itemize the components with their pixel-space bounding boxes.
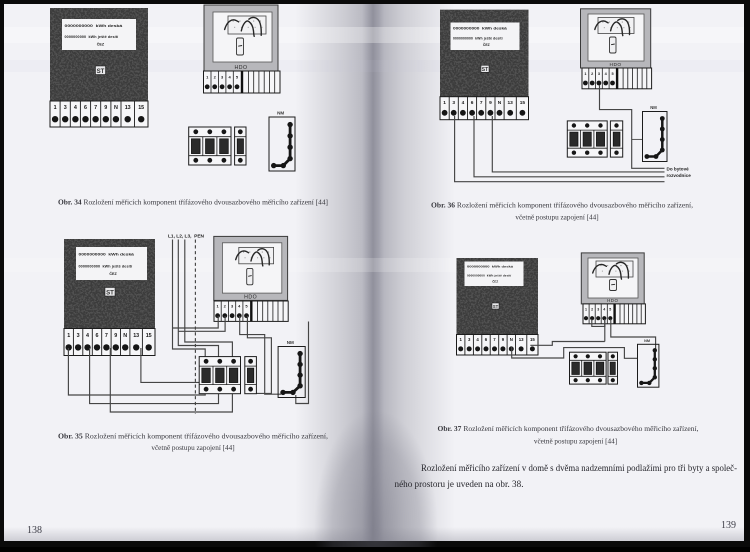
svg-text:9: 9 — [489, 100, 492, 106]
svg-text:15: 15 — [520, 100, 526, 106]
svg-text:3: 3 — [452, 100, 455, 106]
svg-text:0000000000 kWh ještě desítí: 0000000000 kWh ještě desítí — [65, 35, 120, 39]
svg-text:Obr. 34 Rozložení měřicích ko: Obr. 34 Rozložení měřicích komponent tří… — [58, 199, 328, 207]
svg-text:ČEZ: ČEZ — [492, 278, 498, 283]
svg-text:0000000000 kWh deská: 0000000000 kWh deská — [453, 26, 507, 30]
svg-text:ČEZ: ČEZ — [483, 42, 490, 47]
svg-text:HDO: HDO — [234, 65, 247, 71]
svg-text:1: 1 — [54, 105, 57, 111]
svg-text:0000000000 kWh deská: 0000000000 kWh deská — [65, 24, 124, 28]
svg-text:NM: NM — [644, 339, 650, 343]
svg-text:15: 15 — [138, 105, 144, 111]
svg-text:4: 4 — [603, 308, 605, 312]
svg-text:0000000000 kWh ještě desítí: 0000000000 kWh ještě desítí — [453, 37, 504, 41]
svg-text:NM: NM — [287, 340, 294, 345]
svg-text:1: 1 — [585, 308, 587, 312]
svg-text:1: 1 — [67, 333, 70, 339]
svg-text:4: 4 — [462, 100, 465, 106]
svg-text:13: 13 — [508, 100, 514, 106]
svg-text:13: 13 — [519, 337, 524, 342]
svg-text:7: 7 — [480, 100, 483, 106]
svg-text:9: 9 — [104, 105, 107, 111]
svg-text:2: 2 — [591, 72, 593, 76]
svg-text:4: 4 — [86, 333, 89, 339]
svg-text:HDO: HDO — [244, 295, 257, 301]
svg-text:ST: ST — [482, 67, 488, 73]
svg-text:6: 6 — [96, 333, 99, 339]
svg-text:rozvodnice: rozvodnice — [667, 173, 692, 178]
svg-text:NM: NM — [277, 111, 284, 116]
svg-text:5: 5 — [611, 72, 613, 76]
svg-text:0000000000 kWh deská: 0000000000 kWh deská — [467, 265, 513, 269]
svg-text:3: 3 — [77, 333, 80, 339]
svg-text:včetně postupu zapojení [44]: včetně postupu zapojení [44] — [515, 214, 598, 222]
svg-text:7: 7 — [94, 105, 97, 111]
svg-text:3: 3 — [598, 72, 600, 76]
svg-text:ČEZ: ČEZ — [109, 271, 117, 276]
svg-text:ČEZ: ČEZ — [97, 41, 105, 46]
svg-text:Rozložení měřicího zařízení v: Rozložení měřicího zařízení v domě s dvě… — [421, 463, 737, 473]
svg-text:5: 5 — [609, 308, 611, 312]
svg-text:N: N — [114, 105, 118, 111]
svg-text:HDO: HDO — [610, 62, 622, 68]
svg-text:Obr. 37 Rozložení měřicích ko: Obr. 37 Rozložení měřicích komponent tří… — [438, 425, 699, 433]
svg-text:ného prostoru je uveden na obr: ného prostoru je uveden na obr. 38. — [395, 479, 524, 489]
svg-text:HDO: HDO — [607, 298, 618, 303]
svg-text:9: 9 — [114, 333, 117, 339]
svg-text:Do bytové: Do bytové — [667, 167, 690, 172]
svg-text:N: N — [510, 337, 513, 342]
svg-text:1: 1 — [443, 100, 446, 106]
svg-text:15: 15 — [530, 337, 535, 342]
svg-text:ST: ST — [97, 68, 105, 75]
svg-text:L1, L2, L3, PEN: L1, L2, L3, PEN — [168, 234, 205, 240]
svg-text:NM: NM — [650, 105, 657, 110]
svg-text:2: 2 — [591, 308, 593, 312]
svg-text:0000000000 kWh deská: 0000000000 kWh deská — [79, 252, 136, 256]
svg-text:3: 3 — [597, 308, 599, 312]
svg-text:4: 4 — [74, 105, 77, 111]
svg-text:Obr. 36 Rozložení měřicích ko: Obr. 36 Rozložení měřicích komponent tří… — [431, 202, 693, 210]
svg-text:138: 138 — [27, 525, 42, 536]
svg-text:Obr. 35 Rozložení měřicích ko: Obr. 35 Rozložení měřicích komponent tří… — [58, 433, 328, 441]
svg-text:včetně postupu zapojení [44]: včetně postupu zapojení [44] — [534, 438, 617, 446]
svg-text:3: 3 — [64, 105, 67, 111]
svg-text:6: 6 — [471, 100, 474, 106]
svg-text:0000000000 kWh ještě desítí: 0000000000 kWh ještě desítí — [79, 264, 134, 268]
svg-text:15: 15 — [146, 333, 152, 339]
svg-text:N: N — [123, 333, 127, 339]
svg-text:6: 6 — [84, 105, 87, 111]
svg-text:0000000000 kWh ještě desítí: 0000000000 kWh ještě desítí — [467, 274, 511, 278]
svg-text:7: 7 — [105, 333, 108, 339]
svg-text:N: N — [498, 100, 502, 106]
svg-text:13: 13 — [125, 105, 131, 111]
svg-text:13: 13 — [133, 333, 139, 339]
svg-text:ST: ST — [493, 304, 499, 309]
svg-text:včetně postupu zapojení [44]: včetně postupu zapojení [44] — [151, 444, 234, 452]
svg-text:ST: ST — [106, 289, 114, 296]
svg-text:139: 139 — [721, 520, 736, 531]
svg-text:1: 1 — [584, 72, 586, 76]
